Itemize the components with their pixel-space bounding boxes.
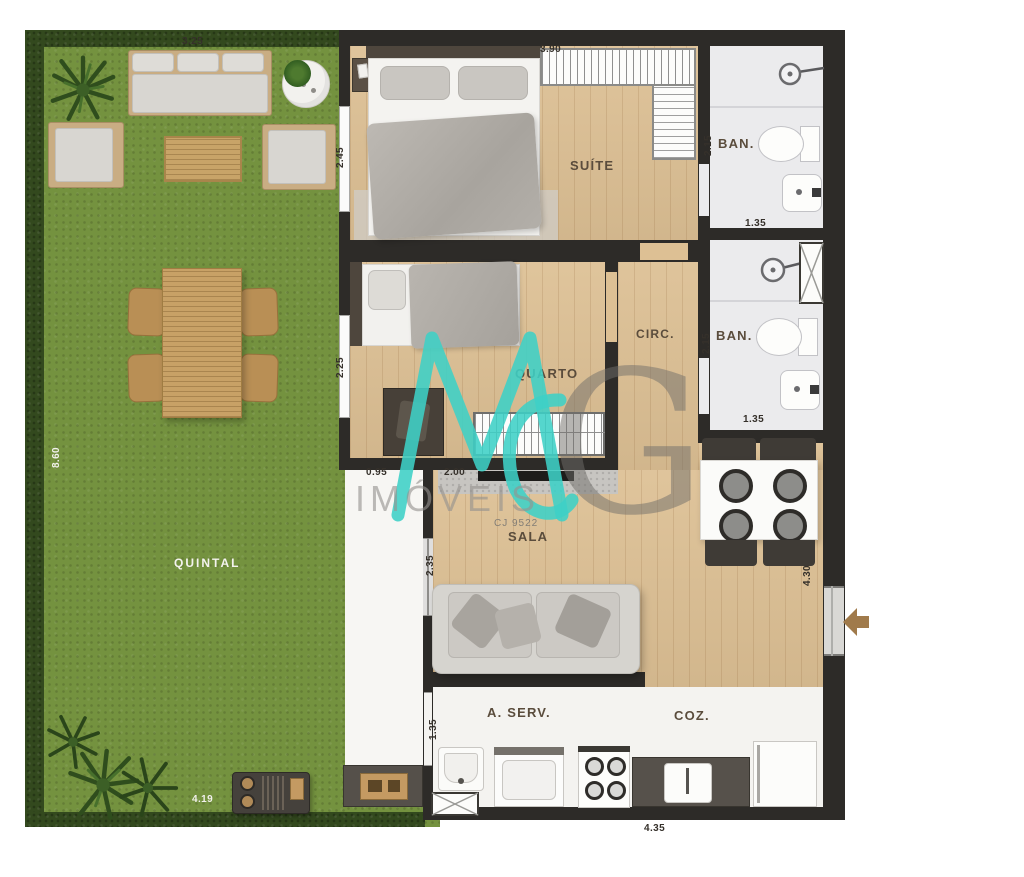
dim-suite-left: 2.45 (335, 147, 346, 168)
dim-kitchen-bottom: 4.35 (644, 823, 665, 834)
sink-tap (810, 385, 819, 394)
plate (773, 469, 807, 503)
dining-chair (702, 438, 756, 462)
dining-chair (760, 438, 816, 462)
dim-living-right: 4.30 (802, 565, 813, 586)
dim-suite-bath-left: 2.15 (703, 135, 714, 156)
stove-burner (585, 757, 604, 776)
suite-door-opening (640, 243, 688, 260)
tank-drain (458, 778, 464, 784)
entrance-arrow-icon (841, 606, 871, 638)
dim-social-bath-bottom: 1.35 (743, 414, 764, 425)
dim-living-left: 2.35 (425, 555, 436, 576)
dining-chair (239, 353, 279, 402)
stove-burner (585, 781, 604, 800)
dim-yard-top: 3.25 (182, 36, 203, 47)
stove-panel (578, 746, 630, 752)
bbq-grate (262, 776, 284, 810)
label-suite-bath: BAN. (718, 136, 755, 151)
sofa-seat (132, 74, 268, 113)
suite-bed-headboard (366, 46, 542, 58)
garden-dining-table (162, 268, 242, 418)
fridge-handle (757, 745, 760, 803)
plate (719, 509, 753, 543)
sofa-back-cushion (222, 53, 264, 72)
sink-drain (794, 386, 800, 392)
label-suite: SUÍTE (570, 158, 614, 173)
suite-bath-door-opening (699, 164, 709, 216)
stove (578, 746, 630, 808)
wall-right (823, 30, 845, 820)
ventilation-shaft-icon (799, 242, 824, 304)
dim-service-left: 1.35 (428, 719, 439, 740)
label-kitchen: COZ. (674, 708, 710, 723)
service-shaft-icon (431, 792, 479, 816)
sink-drain (796, 189, 802, 195)
plate (719, 469, 753, 503)
fridge (753, 741, 817, 807)
sliding-door-line (427, 538, 429, 616)
palm-plant-icon (44, 54, 122, 126)
washer-lid (502, 760, 556, 800)
dining-chair (127, 287, 167, 336)
wall-bath-divider (698, 228, 845, 240)
watermark-brand: IMÓVEIS (355, 478, 540, 520)
bed-pillow (458, 66, 528, 100)
watermark-license: CJ 9522 (494, 518, 538, 529)
stove-burner (607, 757, 626, 776)
palm-plant-icon (112, 756, 184, 820)
sink-faucet (686, 768, 689, 794)
hedge-left (25, 30, 44, 827)
plate (773, 509, 807, 543)
potted-plant-icon (284, 60, 311, 87)
dining-chair (127, 353, 167, 402)
suite-closet-hanging (540, 48, 696, 86)
toilet-bowl (756, 318, 802, 356)
suite-closet-shelves (652, 86, 696, 160)
label-yard: QUINTAL (174, 556, 240, 570)
shower-divider (710, 106, 823, 108)
dim-yard-left: 8.60 (51, 447, 62, 468)
dim-bedroom-left: 2.25 (335, 357, 346, 378)
bbq-burner (240, 776, 255, 791)
stove-burner (607, 781, 626, 800)
sink-tap (812, 188, 821, 197)
armchair-cushion (268, 130, 326, 184)
dim-yard-bottom: 4.19 (192, 794, 213, 805)
tray-slot (368, 780, 382, 792)
sofa-back-cushion (132, 53, 174, 72)
suite-duvet (366, 112, 542, 239)
sofa-back-cushion (177, 53, 219, 72)
shower-head-icon (770, 56, 826, 92)
bedroom-bed-headboard (350, 262, 362, 346)
entrance-door-line (831, 586, 833, 656)
bbq-burner (240, 794, 255, 809)
washer-panel (494, 747, 564, 755)
dining-chair (763, 540, 815, 566)
armchair-cushion (55, 128, 113, 182)
bbq-board (290, 778, 304, 800)
tray-slot (388, 780, 400, 792)
floor-plan: 3.25 3.90 2.45 2.15 1.35 2.25 2.15 1.35 … (0, 0, 1024, 877)
table-dot (311, 88, 316, 93)
bed-pillow (380, 66, 450, 100)
dining-chair (239, 287, 279, 336)
coffee-table (164, 136, 242, 182)
bed-pillow (368, 270, 406, 310)
wall-top (339, 30, 845, 46)
label-service: A. SERV. (487, 705, 551, 720)
label-living: SALA (508, 529, 548, 544)
label-social-bath: BAN. (716, 328, 753, 343)
toilet-bowl (758, 126, 804, 162)
dining-chair (705, 540, 757, 566)
wall-living-service (423, 672, 645, 687)
dim-suite-bath-bottom: 1.35 (745, 218, 766, 229)
dim-suite-top: 3.90 (540, 44, 561, 55)
wall-bottom (423, 807, 845, 820)
